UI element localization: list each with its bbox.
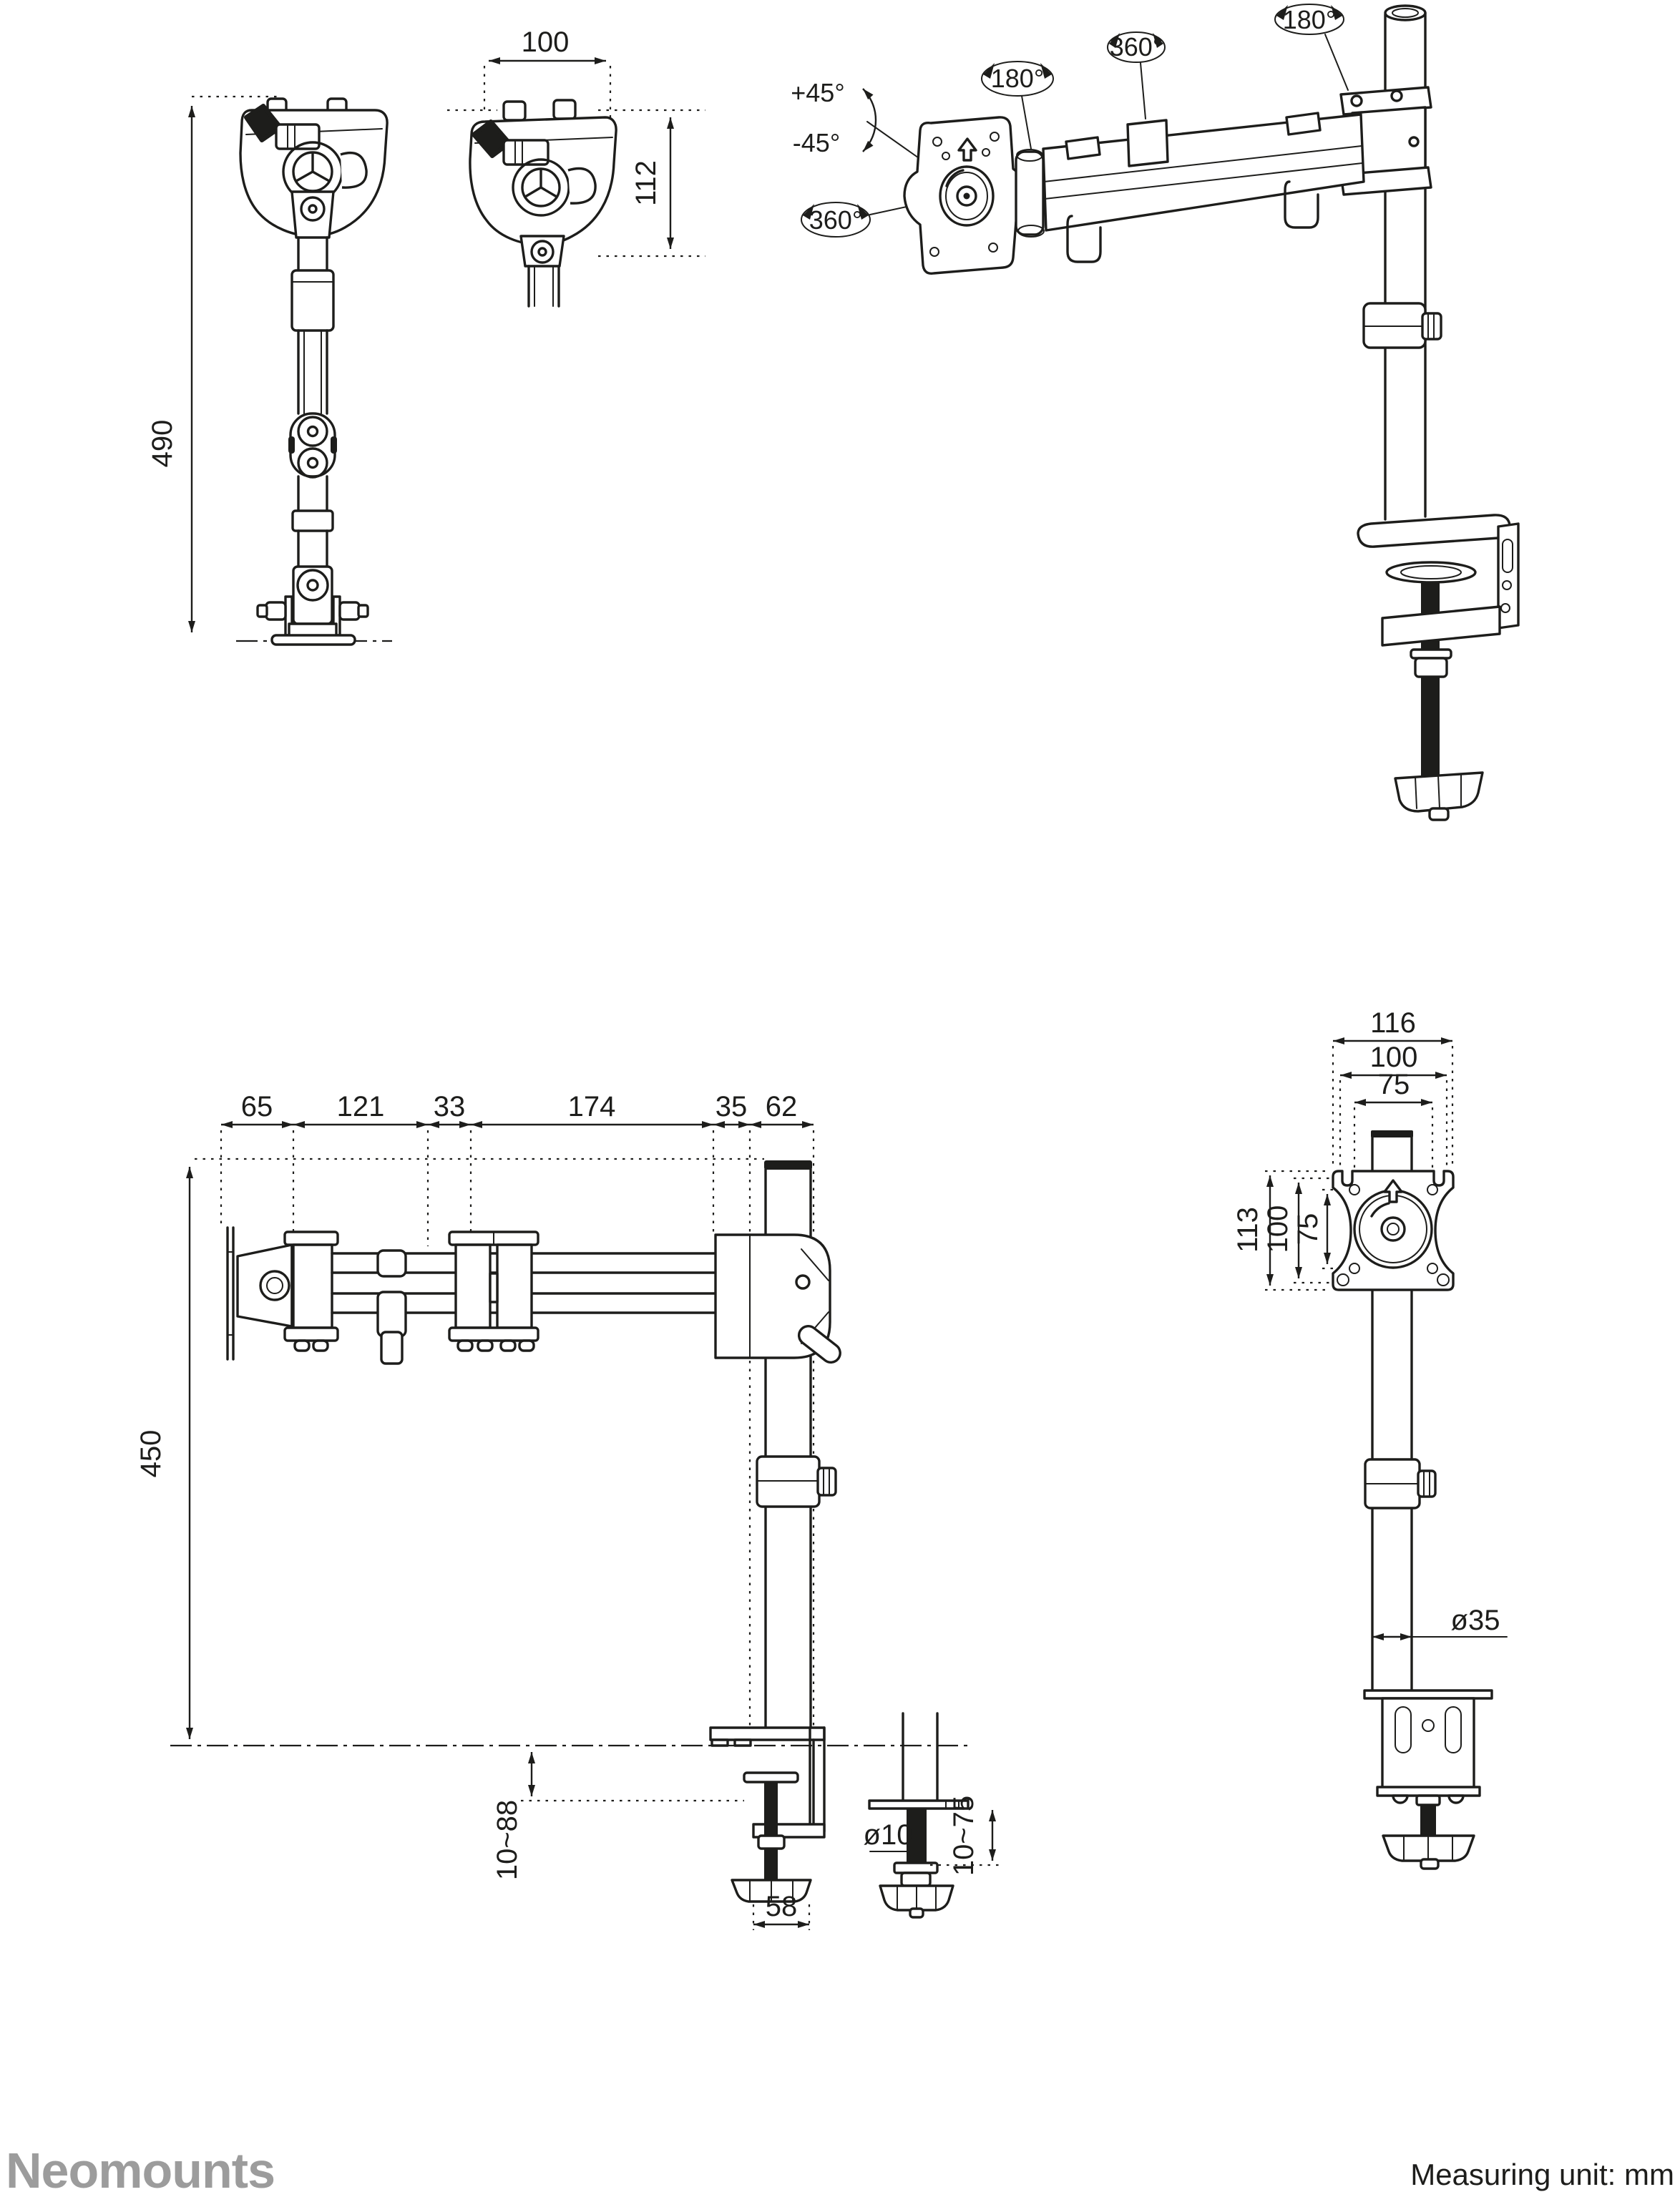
dim-label-front-arm: 121 <box>337 1091 385 1122</box>
measuring-unit-label: Measuring unit: mm <box>1410 2158 1674 2191</box>
tilt-arc <box>863 89 876 152</box>
perspective-desk-clamp <box>1358 515 1518 820</box>
dim-label-hole-height-inner: 75 <box>1292 1213 1324 1246</box>
dim-label-pole-height: 450 <box>135 1430 167 1478</box>
dim-label-hole-width-inner: 75 <box>1378 1069 1410 1100</box>
dim-label-clamp-width: 58 <box>766 1891 798 1922</box>
brand-logo: Neomounts <box>6 2143 275 2198</box>
angle-label-head-swivel: 180° <box>991 64 1044 93</box>
dim-label-pole-diameter: ø35 <box>1451 1605 1500 1636</box>
rear-arm-column <box>258 238 368 645</box>
dim-label-vesa-offset: 65 <box>241 1091 273 1122</box>
view-rear-folded: 490 <box>147 97 392 645</box>
dim-label-rear-height: 490 <box>147 420 178 468</box>
dim-label-mid-joint: 33 <box>434 1091 466 1122</box>
view-side-extended: 65 121 33 174 35 62 450 <box>135 1091 972 1930</box>
view-perspective: +45° -45° 360° 180° 360° <box>791 4 1518 820</box>
rotation-ellipse-arm-swivel: 360° <box>1108 32 1165 119</box>
perspective-vesa-plate <box>904 117 1044 273</box>
angle-label-pole-swivel: 180° <box>1283 5 1336 34</box>
dim-label-rear-arm: 174 <box>568 1091 616 1122</box>
drawing-svg: 490 <box>0 0 1680 2202</box>
dim-label-hole-height: 100 <box>1262 1205 1294 1253</box>
dim-label-plate-height: 113 <box>1232 1207 1264 1253</box>
dim-label-grommet-bolt: ø10 <box>864 1819 913 1851</box>
side-desk-clamp <box>710 1728 824 1902</box>
view-head-side: 100 112 <box>447 26 705 306</box>
dim-label-clamp-depth: 62 <box>766 1091 798 1122</box>
dim-label-grommet-thickness: 10~75 <box>948 1796 980 1876</box>
dim-label-head-height: 112 <box>630 160 662 206</box>
perspective-pole <box>1341 6 1441 519</box>
dim-chain-top: 65 121 33 174 35 62 <box>221 1091 814 1743</box>
dim-label-plate-width: 116 <box>1370 1007 1416 1039</box>
angle-label-tilt-up: +45° <box>791 78 844 107</box>
perspective-arm <box>1043 113 1364 262</box>
front-desk-clamp <box>1364 1690 1492 1869</box>
view-grommet-mount: ø10 10~75 <box>864 1713 1002 1917</box>
rotation-ellipse-pole-swivel: 180° <box>1275 4 1348 90</box>
side-head <box>470 100 616 306</box>
rear-head <box>240 99 387 238</box>
dim-label-desk-thickness: 10~88 <box>492 1800 523 1880</box>
side-arm-assembly <box>228 1228 718 1364</box>
angle-label-arm-swivel: 360° <box>1110 32 1163 62</box>
angle-label-tilt-down: -45° <box>793 128 840 157</box>
front-vesa-plate <box>1333 1171 1453 1290</box>
dim-label-head-width: 100 <box>522 26 570 58</box>
technical-drawing-page: 490 <box>0 0 1680 2202</box>
angle-label-vesa-spin: 360° <box>809 205 862 235</box>
side-pole <box>716 1160 844 1728</box>
dim-label-pole-offset: 35 <box>716 1091 748 1122</box>
view-front: 116 100 75 113 100 75 <box>1232 1007 1507 1869</box>
